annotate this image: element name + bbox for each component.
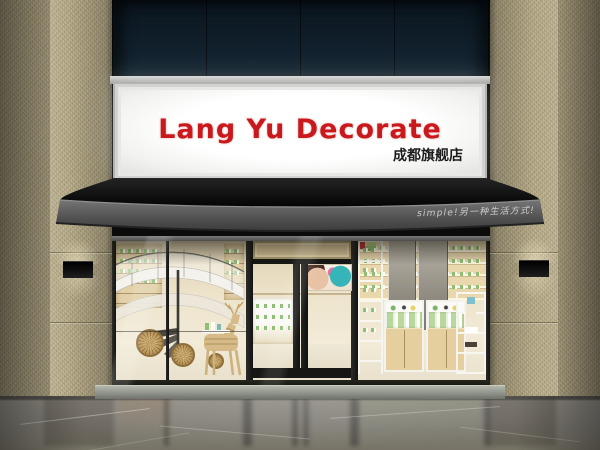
cabinet-doors xyxy=(386,328,422,370)
product-item xyxy=(465,342,477,347)
product-row xyxy=(363,288,378,292)
door-gap xyxy=(300,264,301,374)
door-bottom-rail xyxy=(253,368,351,378)
product-item xyxy=(467,297,475,304)
product-display-table xyxy=(253,298,293,344)
sign-subtitle: 成都旗舰店 xyxy=(393,145,463,165)
product-item xyxy=(466,312,476,318)
storefront-photo: Lang Yu Decorate 成都旗舰店 simple!另一种生活方式! xyxy=(0,0,600,450)
reflection-streak xyxy=(292,398,298,446)
upper-facade-panel xyxy=(112,0,490,84)
reflection-streak xyxy=(118,398,170,446)
window-frame xyxy=(486,236,490,380)
cabinet-product-shelf xyxy=(386,312,422,328)
product-item xyxy=(465,327,478,333)
product-row xyxy=(363,248,378,252)
reflection-streak xyxy=(44,398,114,446)
reflection-streak xyxy=(243,398,252,446)
left-outer-wall xyxy=(0,0,50,398)
door-transom-panel xyxy=(253,241,351,259)
ladder-shelf xyxy=(358,240,383,374)
rattan-wheel xyxy=(136,329,164,357)
wall-seam xyxy=(490,322,558,323)
reflection-streak xyxy=(350,398,359,446)
wall-seam xyxy=(50,252,112,253)
product-row xyxy=(363,328,378,332)
wall-seam xyxy=(490,252,558,253)
door-jamb-left xyxy=(246,236,253,380)
product-row xyxy=(363,268,378,272)
threshold-step xyxy=(95,385,505,399)
reflection-streak xyxy=(492,398,556,446)
awning-canopy xyxy=(60,178,540,207)
reflection-streak xyxy=(164,398,169,446)
right-outer-wall xyxy=(558,0,600,398)
door-jamb-right xyxy=(351,236,358,380)
window-mid-rail xyxy=(115,331,246,332)
door-stile-right xyxy=(301,264,308,374)
cabinet-top-display xyxy=(386,302,422,312)
window-frame xyxy=(112,236,116,380)
ladder-shelf xyxy=(456,292,486,374)
wall-seam xyxy=(50,322,112,323)
sign-title: Lang Yu Decorate xyxy=(121,114,479,145)
product-row xyxy=(256,326,290,330)
sign-light-panel: Lang Yu Decorate 成都旗舰店 xyxy=(121,90,479,173)
product-row xyxy=(363,308,378,312)
door-stile-left xyxy=(293,264,300,374)
reflection-streak xyxy=(484,398,492,446)
product-row xyxy=(256,315,290,319)
wall-sconce-right xyxy=(519,260,549,277)
window-mullion xyxy=(166,236,169,380)
signboard: Lang Yu Decorate 成都旗舰店 xyxy=(113,82,487,181)
wall-sconce-left xyxy=(63,261,93,278)
storefront-glazing xyxy=(112,236,490,388)
beauty-poster xyxy=(302,264,352,291)
reflection-streak xyxy=(362,398,478,446)
rattan-wheel xyxy=(171,343,195,367)
display-cabinet xyxy=(384,300,424,372)
product-row xyxy=(256,304,290,308)
